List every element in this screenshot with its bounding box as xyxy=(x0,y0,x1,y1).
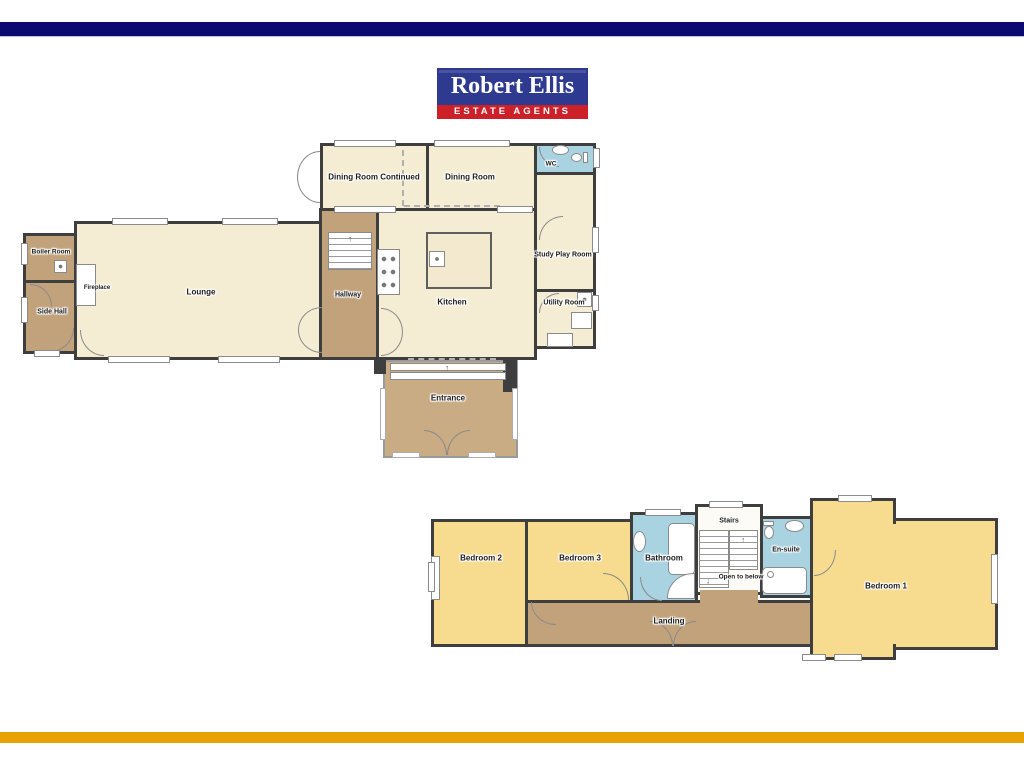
dining-french-door-arc xyxy=(297,177,320,203)
entrance-window xyxy=(512,388,518,440)
room-bedroom1-right xyxy=(893,518,998,650)
window xyxy=(645,509,681,516)
window xyxy=(21,243,28,265)
window xyxy=(592,227,599,253)
window xyxy=(334,140,396,147)
wc-toilet-icon xyxy=(571,153,582,162)
ensuite-toilet-icon xyxy=(764,526,774,539)
window xyxy=(838,495,872,502)
kitchen-hob-icon xyxy=(377,249,400,295)
room-label-ensuite: En-suite xyxy=(772,547,800,554)
bathroom-basin-icon xyxy=(633,531,646,552)
room-label-study: Study Play Room xyxy=(534,252,592,259)
window xyxy=(834,654,862,661)
window xyxy=(593,148,600,168)
entrance-step xyxy=(390,372,506,380)
agency-logo: Robert Ellis ESTATE AGENTS xyxy=(437,68,588,119)
room-label-lounge: Lounge xyxy=(187,288,216,297)
floorplan-page: Robert Ellis ESTATE AGENTS ↑ xyxy=(0,0,1024,768)
window xyxy=(21,297,28,323)
room-label-fireplace: Fireplace xyxy=(84,285,110,291)
stairs-down-arrow-icon: ↓ xyxy=(706,577,710,586)
top-brand-bar xyxy=(0,22,1024,37)
entrance-wall-jamb xyxy=(374,358,386,374)
agency-tagline: ESTATE AGENTS xyxy=(437,105,588,119)
window xyxy=(497,206,533,213)
wc-cistern-icon xyxy=(583,152,588,163)
room-label-entrance: Entrance xyxy=(431,394,465,403)
room-bedroom2 xyxy=(431,519,528,647)
window xyxy=(34,350,60,357)
window xyxy=(802,654,826,661)
utility-appliance-icon xyxy=(547,333,573,347)
window xyxy=(218,356,280,363)
room-label-kitchen: Kitchen xyxy=(437,298,466,307)
window xyxy=(108,356,170,363)
room-label-boiler: Boiler Room xyxy=(32,249,71,256)
stairs-up-arrow-icon: ↑ xyxy=(348,235,352,244)
window xyxy=(222,218,278,225)
room-label-bedroom1: Bedroom 1 xyxy=(865,582,907,591)
window xyxy=(428,562,435,592)
dining-french-door-arc xyxy=(297,151,320,177)
kitchen-sink-icon xyxy=(429,251,445,267)
boiler-unit-icon xyxy=(54,260,67,273)
landing-stairs-opening xyxy=(700,590,758,604)
room-boiler xyxy=(23,233,77,283)
window xyxy=(592,295,599,311)
label-open-to-below: Open to below xyxy=(719,574,764,581)
window xyxy=(709,501,743,508)
window xyxy=(334,206,396,213)
entrance-up-arrow-icon: ↑ xyxy=(445,364,449,373)
room-label-landing: Landing xyxy=(653,617,684,626)
utility-appliance-icon xyxy=(571,312,592,329)
stairs-up-arrow-icon: ↑ xyxy=(741,536,745,545)
entrance-window xyxy=(380,388,386,440)
open-plan-divider xyxy=(408,358,496,360)
room-label-bathroom: Bathroom xyxy=(645,554,683,563)
room-bedroom1-left xyxy=(810,498,896,660)
room-hallway xyxy=(319,208,379,360)
bottom-brand-bar xyxy=(0,732,1024,743)
room-label-side-hall: Side Hall xyxy=(37,309,67,316)
entrance-window xyxy=(392,452,420,458)
room-label-wc: WC xyxy=(546,161,557,168)
room-label-dining-continued: Dining Room Continued xyxy=(328,173,420,182)
entrance-window xyxy=(468,452,496,458)
window xyxy=(112,218,168,225)
window xyxy=(991,554,998,604)
bathtub-icon xyxy=(668,523,695,575)
window xyxy=(434,140,510,147)
room-label-bedroom3: Bedroom 3 xyxy=(559,554,601,563)
room-label-hallway: Hallway xyxy=(335,292,361,299)
room-label-dining: Dining Room xyxy=(445,173,495,182)
room-label-stairs: Stairs xyxy=(719,518,738,525)
ensuite-basin-icon xyxy=(785,520,804,532)
shower-drain-icon xyxy=(767,571,774,578)
room-label-utility: Utility Room xyxy=(543,300,584,307)
open-plan-divider xyxy=(404,205,500,207)
room-label-bedroom2: Bedroom 2 xyxy=(460,554,502,563)
agency-name: Robert Ellis xyxy=(437,68,588,105)
